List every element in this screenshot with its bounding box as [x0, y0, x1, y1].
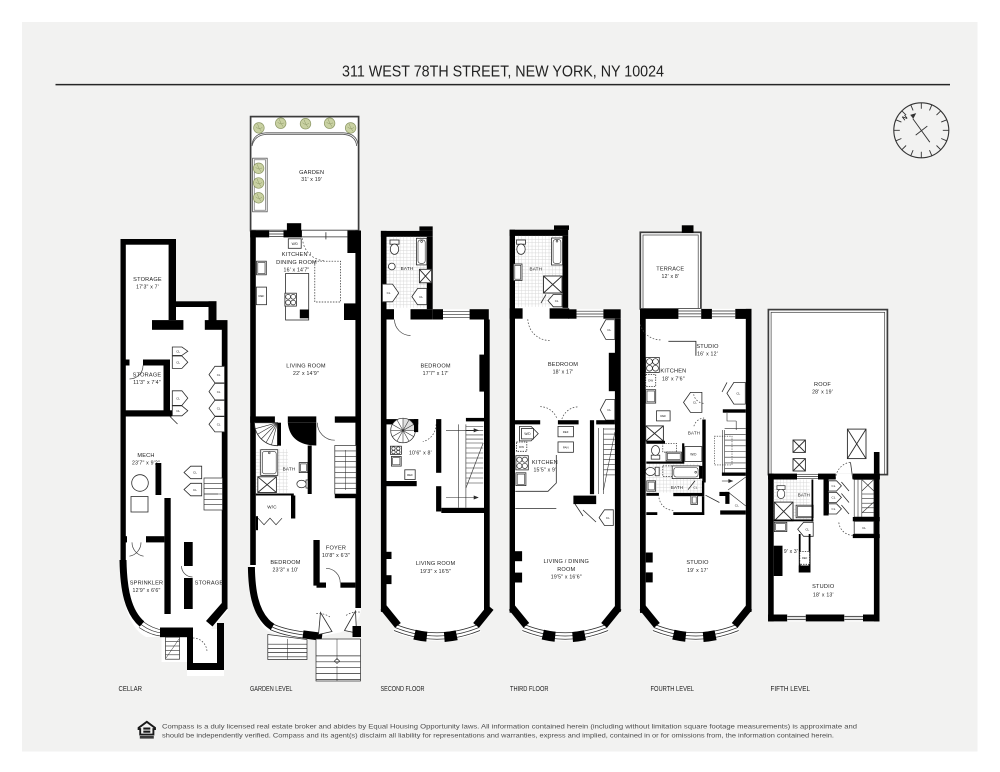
svg-text:CL: CL: [606, 516, 610, 520]
svg-text:BATH: BATH: [529, 266, 542, 271]
svg-text:31' x 19': 31' x 19': [301, 177, 322, 183]
svg-text:REF: REF: [259, 294, 265, 298]
svg-text:DW: DW: [519, 445, 524, 449]
svg-text:LIVING ROOM: LIVING ROOM: [416, 561, 456, 567]
svg-text:BEDROOM: BEDROOM: [270, 560, 300, 566]
svg-text:CL: CL: [419, 295, 423, 299]
svg-text:CL: CL: [193, 488, 197, 492]
svg-text:CL: CL: [831, 507, 835, 511]
svg-text:BATH: BATH: [688, 430, 700, 435]
svg-text:Compass is a duly licensed rea: Compass is a duly licensed real estate b…: [162, 723, 857, 730]
svg-text:CL: CL: [176, 409, 180, 413]
svg-text:MECH: MECH: [137, 453, 154, 459]
svg-text:CL: CL: [176, 349, 180, 353]
svg-text:GARDEN: GARDEN: [299, 170, 324, 176]
svg-text:W/D: W/D: [690, 452, 697, 456]
svg-text:18' x 17': 18' x 17': [553, 370, 574, 376]
svg-text:STORAGE: STORAGE: [133, 277, 162, 283]
svg-text:17'3" x 7': 17'3" x 7': [136, 284, 159, 290]
svg-text:BATH: BATH: [283, 466, 296, 471]
svg-text:ROOM: ROOM: [557, 567, 575, 573]
svg-text:SECOND FLOOR: SECOND FLOOR: [380, 684, 424, 693]
svg-text:10'8" x 6'3": 10'8" x 6'3": [322, 553, 350, 559]
svg-text:STORAGE: STORAGE: [195, 581, 224, 587]
svg-text:9' x 3': 9' x 3': [784, 549, 798, 555]
svg-text:12'9" x 6'6": 12'9" x 6'6": [133, 588, 161, 594]
svg-text:W/D: W/D: [524, 432, 531, 436]
svg-text:CL: CL: [736, 391, 740, 395]
svg-text:REF: REF: [563, 430, 569, 434]
svg-text:19'3" x 16'5": 19'3" x 16'5": [420, 569, 451, 575]
svg-text:should be independently verifi: should be independently verified. Compas…: [162, 732, 834, 739]
svg-text:REF: REF: [802, 556, 808, 560]
svg-text:CL: CL: [735, 504, 739, 508]
svg-text:18' x 7'6": 18' x 7'6": [662, 376, 685, 382]
svg-text:CL: CL: [217, 390, 221, 394]
svg-text:CL: CL: [217, 373, 221, 377]
svg-text:CL: CL: [217, 422, 221, 426]
svg-text:CL: CL: [607, 408, 611, 412]
svg-text:28' x 19': 28' x 19': [812, 390, 833, 396]
svg-text:CL: CL: [831, 496, 835, 500]
svg-text:SPRINKLER: SPRINKLER: [130, 581, 164, 587]
svg-text:DW: DW: [648, 379, 653, 383]
svg-text:CL: CL: [805, 528, 809, 532]
svg-text:BATH: BATH: [671, 485, 683, 490]
svg-text:TERRACE: TERRACE: [656, 267, 684, 273]
svg-text:GARDEN LEVEL: GARDEN LEVEL: [250, 684, 293, 693]
svg-text:CL: CL: [387, 291, 391, 295]
svg-text:BATH: BATH: [401, 266, 414, 271]
svg-text:311 WEST 78TH STREET, NEW YORK: 311 WEST 78TH STREET, NEW YORK, NY 10024: [342, 63, 664, 80]
svg-text:22' x 14'9": 22' x 14'9": [293, 371, 319, 377]
svg-text:CL: CL: [176, 396, 180, 400]
svg-text:REF: REF: [660, 414, 666, 418]
svg-text:16' x 12': 16' x 12': [697, 352, 718, 358]
svg-text:STORAGE: STORAGE: [133, 372, 162, 378]
svg-text:CL: CL: [555, 299, 559, 303]
svg-text:BEDROOM: BEDROOM: [420, 363, 450, 369]
svg-text:15'5" x 9': 15'5" x 9': [533, 468, 556, 474]
svg-text:CL: CL: [217, 406, 221, 410]
svg-text:23'3" x 10': 23'3" x 10': [273, 567, 299, 573]
svg-text:REF: REF: [407, 473, 413, 477]
svg-text:16' x 14'7": 16' x 14'7": [284, 267, 310, 273]
svg-text:KITCHEN: KITCHEN: [532, 460, 558, 466]
svg-text:CL: CL: [176, 360, 180, 364]
svg-text:DINING ROOM: DINING ROOM: [276, 260, 317, 266]
svg-text:CL: CL: [193, 471, 197, 475]
svg-text:W/D: W/D: [292, 242, 299, 246]
svg-text:11'3" x 7'4": 11'3" x 7'4": [133, 380, 161, 386]
svg-text:CL: CL: [831, 484, 835, 488]
svg-text:LIVING / DINING: LIVING / DINING: [544, 559, 590, 565]
svg-text:CL: CL: [693, 485, 697, 489]
svg-text:STUDIO: STUDIO: [812, 584, 835, 590]
svg-text:BATH: BATH: [798, 493, 810, 498]
svg-text:17'7" x 17': 17'7" x 17': [423, 371, 449, 377]
svg-text:LIVING ROOM: LIVING ROOM: [286, 363, 326, 369]
svg-text:ROOF: ROOF: [814, 382, 831, 388]
svg-text:19' x 17': 19' x 17': [687, 568, 708, 574]
svg-text:BEDROOM: BEDROOM: [548, 362, 578, 368]
svg-text:19'5" x 16'6": 19'5" x 16'6": [551, 575, 582, 581]
svg-text:CL: CL: [607, 328, 611, 332]
svg-text:10'6" x 8': 10'6" x 8': [409, 450, 432, 456]
svg-text:CL: CL: [862, 526, 866, 530]
svg-text:FOURTH LEVEL: FOURTH LEVEL: [650, 684, 694, 693]
svg-text:STUDIO: STUDIO: [696, 344, 719, 350]
svg-text:W/C: W/C: [267, 505, 277, 510]
svg-text:KITCHEN /: KITCHEN /: [282, 252, 312, 258]
svg-text:FIFTH LEVEL: FIFTH LEVEL: [770, 684, 810, 693]
svg-text:12' x 8': 12' x 8': [661, 274, 679, 280]
svg-text:THIRD FLOOR: THIRD FLOOR: [510, 684, 549, 693]
svg-text:CELLAR: CELLAR: [118, 684, 142, 693]
svg-text:PAN: PAN: [563, 445, 569, 449]
svg-text:18' x 13': 18' x 13': [813, 592, 834, 598]
svg-text:KITCHEN: KITCHEN: [660, 369, 686, 375]
svg-text:STUDIO: STUDIO: [686, 560, 709, 566]
svg-text:CL: CL: [693, 401, 697, 405]
svg-text:FOYER: FOYER: [326, 545, 346, 551]
